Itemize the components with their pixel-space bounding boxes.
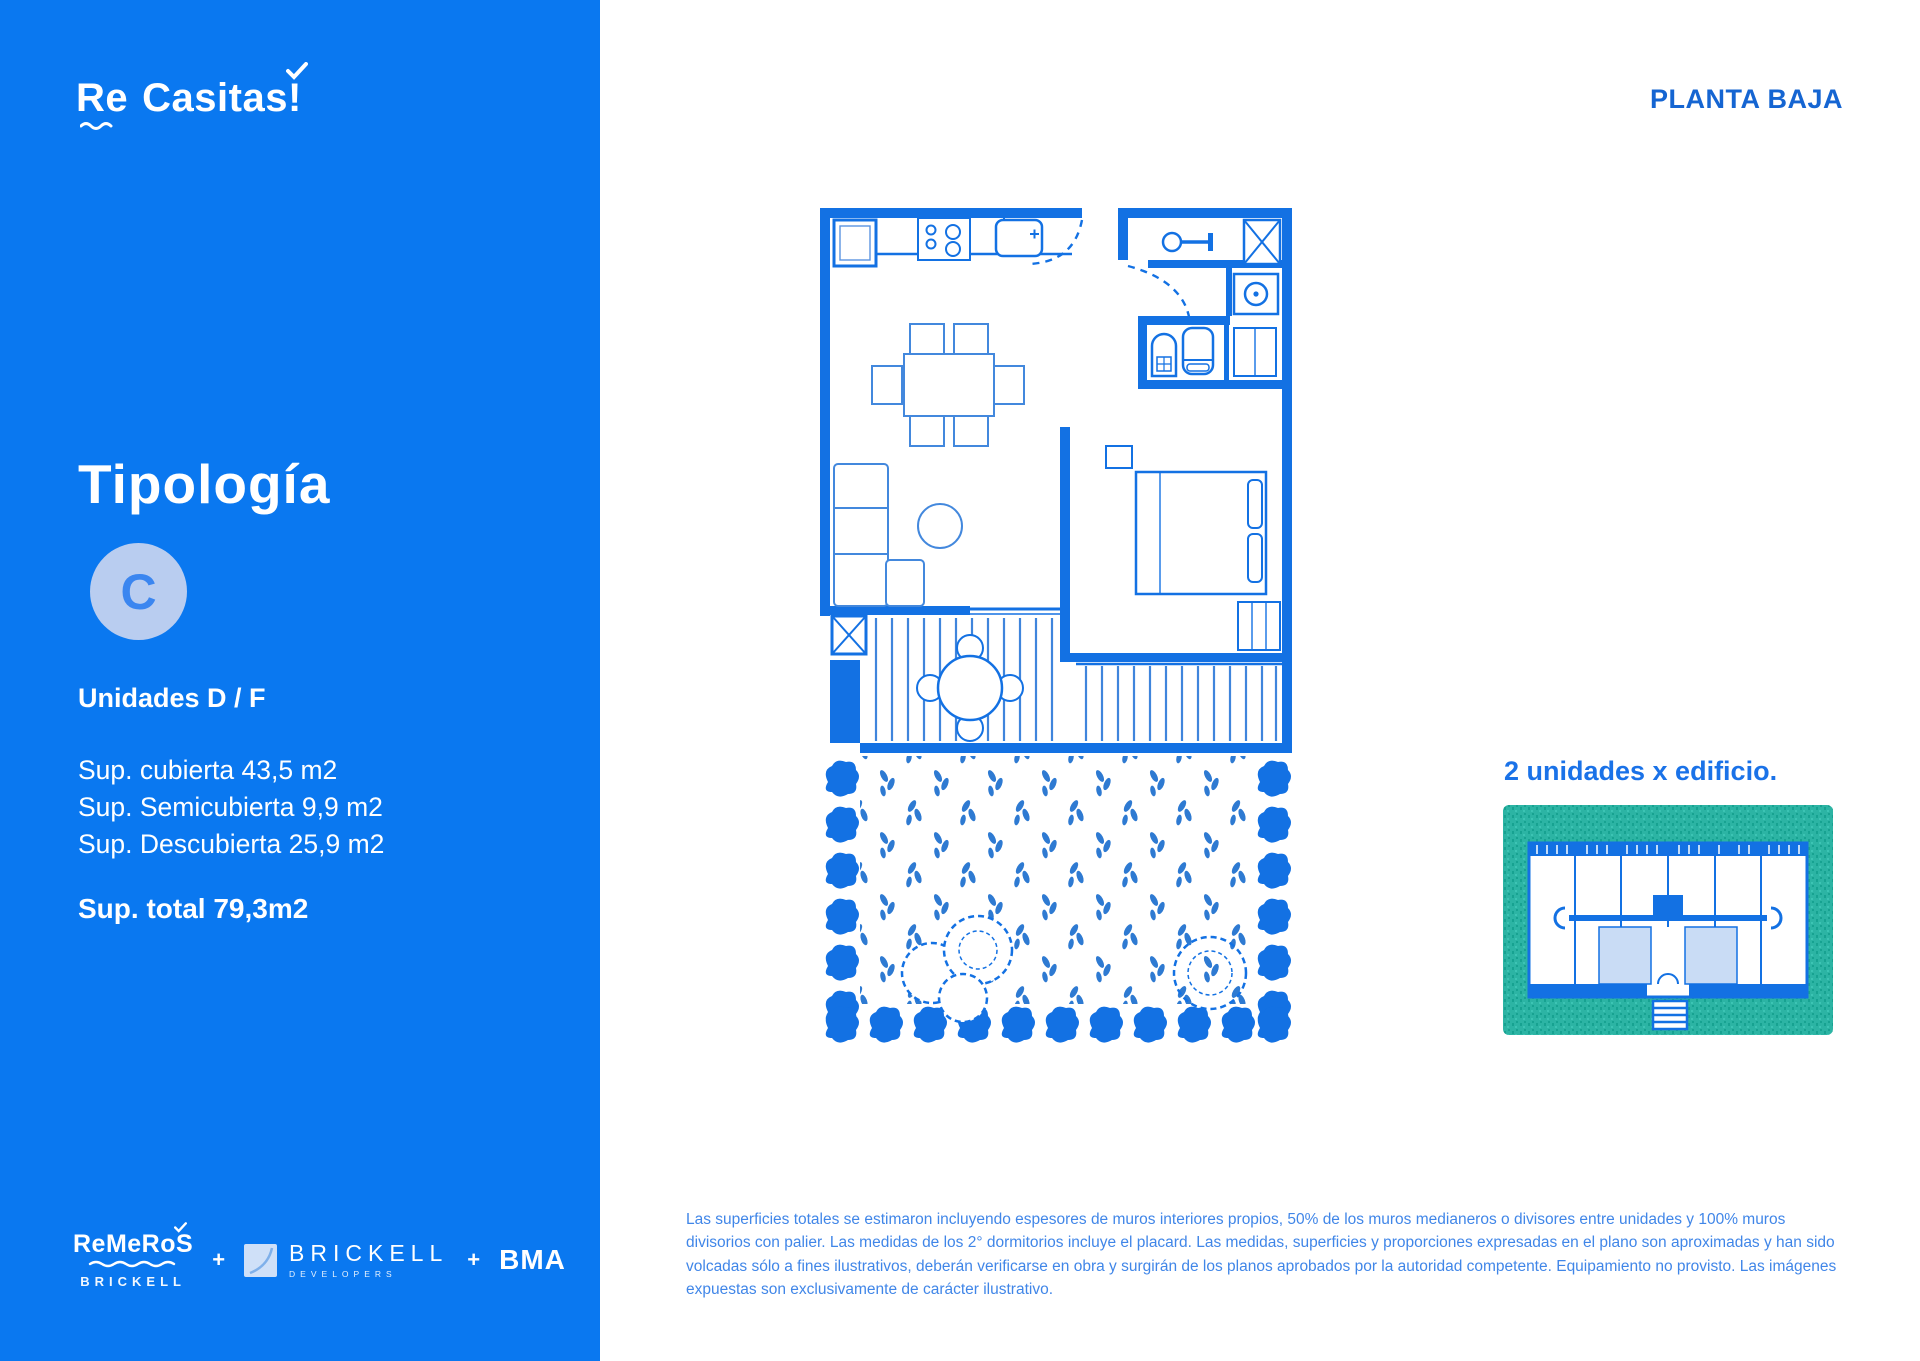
wave-icon xyxy=(88,1260,178,1268)
railing xyxy=(1076,664,1282,741)
typology-title: Tipología xyxy=(78,452,330,516)
brochure-page: Re Casitas! Tipología C Unidades D / F S… xyxy=(0,0,1920,1361)
keyplan-stairs xyxy=(1653,1001,1687,1029)
sidebar: Re Casitas! Tipología C Unidades D / F S… xyxy=(0,0,600,1361)
bma-logo: BMA xyxy=(499,1244,566,1276)
keyplan-caption: 2 unidades x edificio. xyxy=(1504,756,1844,787)
brickell-name: BRICKELL xyxy=(289,1242,448,1265)
shower-icon xyxy=(1244,220,1280,264)
units-label: Unidades D / F xyxy=(78,683,266,714)
disclaimer-text: Las superficies totales se estimaron inc… xyxy=(686,1208,1854,1301)
remeros-name: ReMeRoS xyxy=(73,1230,193,1258)
wc xyxy=(1152,328,1276,376)
page-title: PLANTA BAJA xyxy=(1650,84,1843,115)
keyplan xyxy=(1503,805,1833,1035)
garden xyxy=(826,756,1291,1043)
keyplan-unit-highlight xyxy=(1685,927,1737,984)
wave-icon xyxy=(80,121,116,131)
plus-separator: + xyxy=(467,1247,480,1273)
closet-icon xyxy=(1238,602,1280,650)
keyplan-unit-highlight xyxy=(1599,927,1651,984)
area-covered: Sup. cubierta 43,5 m2 xyxy=(78,752,384,789)
floor-plan xyxy=(820,208,1292,1048)
total-area: Sup. total 79,3m2 xyxy=(78,893,308,925)
side-table xyxy=(918,504,962,548)
typology-badge: C xyxy=(90,543,187,640)
hedge-left xyxy=(826,761,859,1027)
sink-icon xyxy=(996,215,1042,256)
recasitas-logo: Re Casitas! xyxy=(76,76,302,121)
fridge-icon xyxy=(834,220,876,266)
sofa xyxy=(834,464,924,606)
dining-set xyxy=(872,324,1024,446)
nightstand xyxy=(1106,446,1132,468)
toilet-icon xyxy=(1183,328,1213,374)
sliding-door xyxy=(970,609,1060,614)
logo-re-text: Re xyxy=(76,76,142,121)
brickell-square-icon xyxy=(244,1244,277,1277)
washing-machine-icon xyxy=(1234,274,1278,314)
area-semicovered: Sup. Semicubierta 9,9 m2 xyxy=(78,789,384,826)
planter-box xyxy=(832,616,866,654)
faucet-icon xyxy=(1163,233,1213,251)
keyplan-drawing xyxy=(1503,805,1833,1035)
kitchen xyxy=(834,215,1072,266)
bed-icon xyxy=(1136,472,1266,594)
partner-logos: ReMeRoS BRICKELL + BRICKELL DEVELOPERS +… xyxy=(73,1232,566,1288)
hedge-right xyxy=(1258,761,1291,1027)
brickell-logo: BRICKELL DEVELOPERS xyxy=(244,1242,448,1279)
stove-icon xyxy=(918,218,970,260)
check-icon xyxy=(286,62,308,80)
typology-letter: C xyxy=(120,563,156,621)
remeros-logo: ReMeRoS BRICKELL xyxy=(73,1232,193,1288)
area-uncovered: Sup. Descubierta 25,9 m2 xyxy=(78,826,384,863)
bidet-icon xyxy=(1152,334,1176,376)
floor-plan-drawing xyxy=(820,208,1292,1048)
terrace-table-set xyxy=(917,635,1023,741)
logo-casitas-text: Casitas! xyxy=(142,76,302,121)
plus-separator: + xyxy=(212,1247,225,1273)
tree-right xyxy=(1174,937,1246,1009)
hedge-bottom xyxy=(826,1007,1291,1043)
closet-small xyxy=(1234,328,1276,376)
areas-list: Sup. cubierta 43,5 m2 Sup. Semicubierta … xyxy=(78,752,384,863)
check-icon xyxy=(174,1222,187,1233)
bedroom xyxy=(1106,446,1280,650)
remeros-sub: BRICKELL xyxy=(80,1275,186,1288)
brickell-sub: DEVELOPERS xyxy=(289,1270,448,1279)
